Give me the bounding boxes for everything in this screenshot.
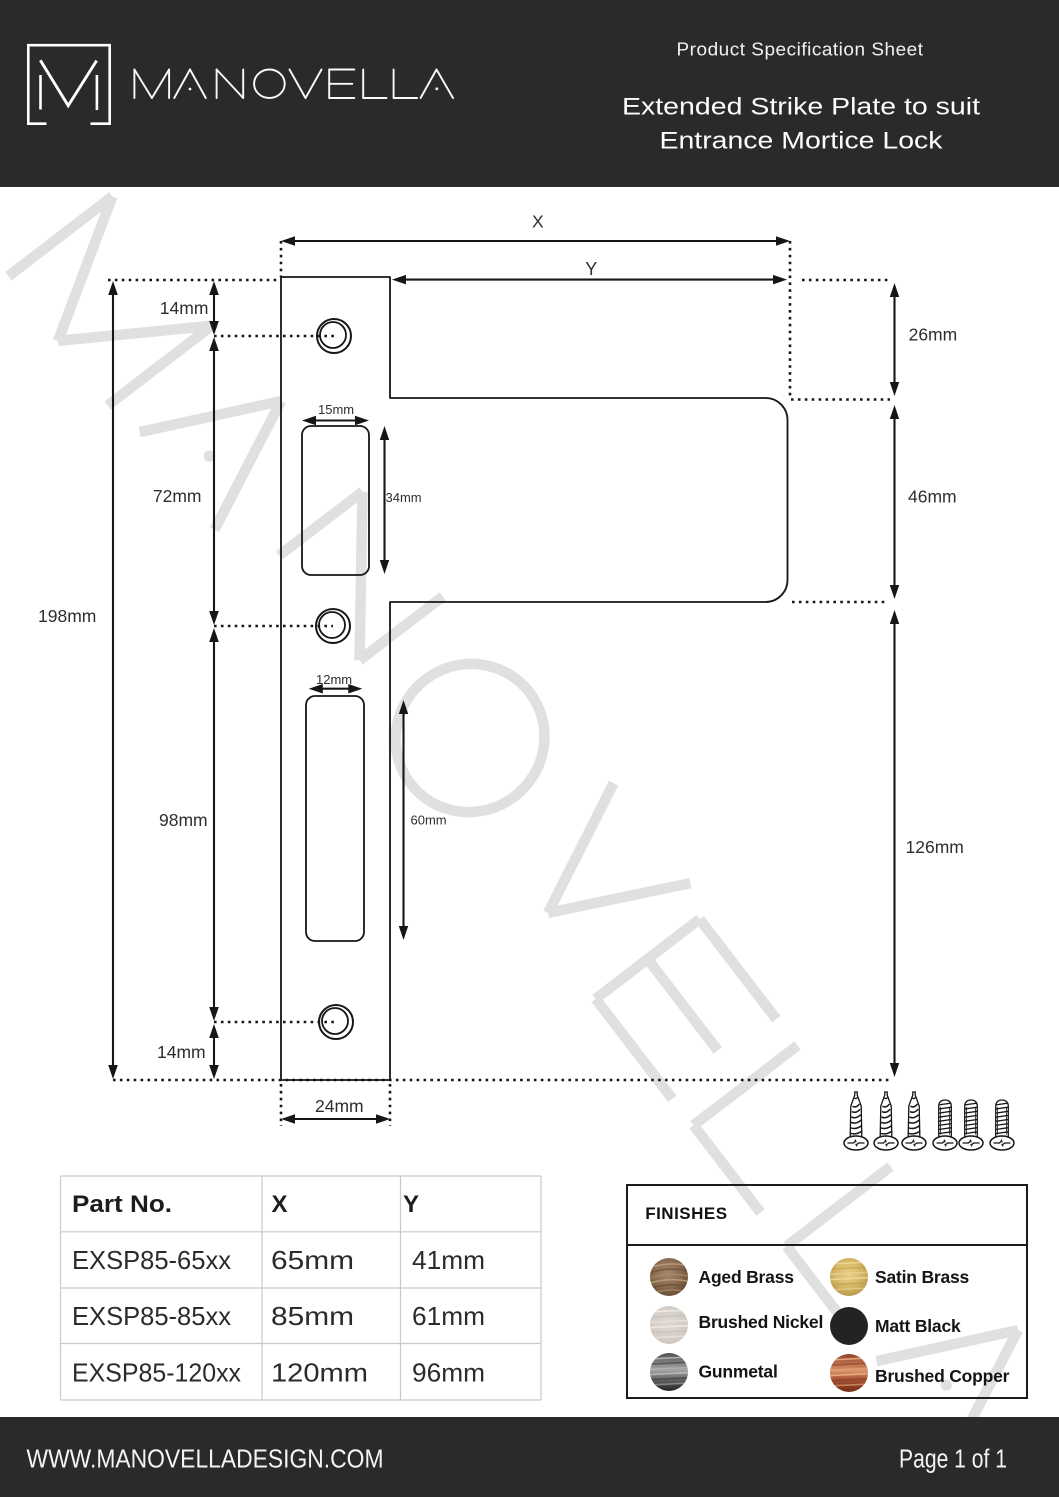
svg-text:24mm: 24mm <box>315 1096 364 1116</box>
svg-text:Aged Brass: Aged Brass <box>699 1267 795 1287</box>
svg-text:Part No.: Part No. <box>72 1191 172 1218</box>
svg-text:FINISHES: FINISHES <box>645 1204 727 1223</box>
svg-text:Brushed Copper: Brushed Copper <box>875 1366 1010 1386</box>
svg-text:15mm: 15mm <box>318 402 354 417</box>
svg-text:Y: Y <box>403 1191 419 1218</box>
svg-text:98mm: 98mm <box>159 810 208 830</box>
svg-text:Extended Strike Plate to suit: Extended Strike Plate to suit <box>622 94 980 121</box>
svg-text:EXSP85-120xx: EXSP85-120xx <box>72 1358 241 1388</box>
svg-text:120mm: 120mm <box>271 1358 368 1388</box>
svg-text:Gunmetal: Gunmetal <box>699 1362 778 1382</box>
svg-text:Satin Brass: Satin Brass <box>875 1267 970 1287</box>
svg-text:46mm: 46mm <box>908 487 957 507</box>
svg-text:61mm: 61mm <box>412 1301 485 1331</box>
svg-text:Y: Y <box>585 259 597 279</box>
svg-text:26mm: 26mm <box>909 325 958 345</box>
svg-text:Page 1 of 1: Page 1 of 1 <box>899 1446 1007 1474</box>
svg-text:Matt Black: Matt Black <box>875 1316 961 1336</box>
svg-text:14mm: 14mm <box>160 298 209 318</box>
svg-text:60mm: 60mm <box>411 813 447 828</box>
svg-text:Product Specification Sheet: Product Specification Sheet <box>677 38 924 59</box>
svg-text:72mm: 72mm <box>153 486 202 506</box>
svg-text:41mm: 41mm <box>412 1245 485 1275</box>
svg-text:Entrance Mortice Lock: Entrance Mortice Lock <box>660 127 944 154</box>
svg-text:EXSP85-85xx: EXSP85-85xx <box>72 1301 231 1331</box>
svg-text:34mm: 34mm <box>386 490 422 505</box>
svg-text:14mm: 14mm <box>157 1042 206 1062</box>
svg-text:EXSP85-65xx: EXSP85-65xx <box>72 1245 231 1275</box>
svg-text:65mm: 65mm <box>271 1245 354 1275</box>
svg-text:85mm: 85mm <box>271 1301 354 1331</box>
svg-text:126mm: 126mm <box>906 837 964 857</box>
svg-text:WWW.MANOVELLADESIGN.COM: WWW.MANOVELLADESIGN.COM <box>27 1446 384 1474</box>
svg-text:96mm: 96mm <box>412 1358 485 1388</box>
svg-text:X: X <box>272 1191 288 1218</box>
svg-text:198mm: 198mm <box>38 606 96 626</box>
svg-text:X: X <box>532 212 544 232</box>
svg-text:Brushed Nickel: Brushed Nickel <box>699 1312 824 1332</box>
svg-text:12mm: 12mm <box>316 672 352 687</box>
